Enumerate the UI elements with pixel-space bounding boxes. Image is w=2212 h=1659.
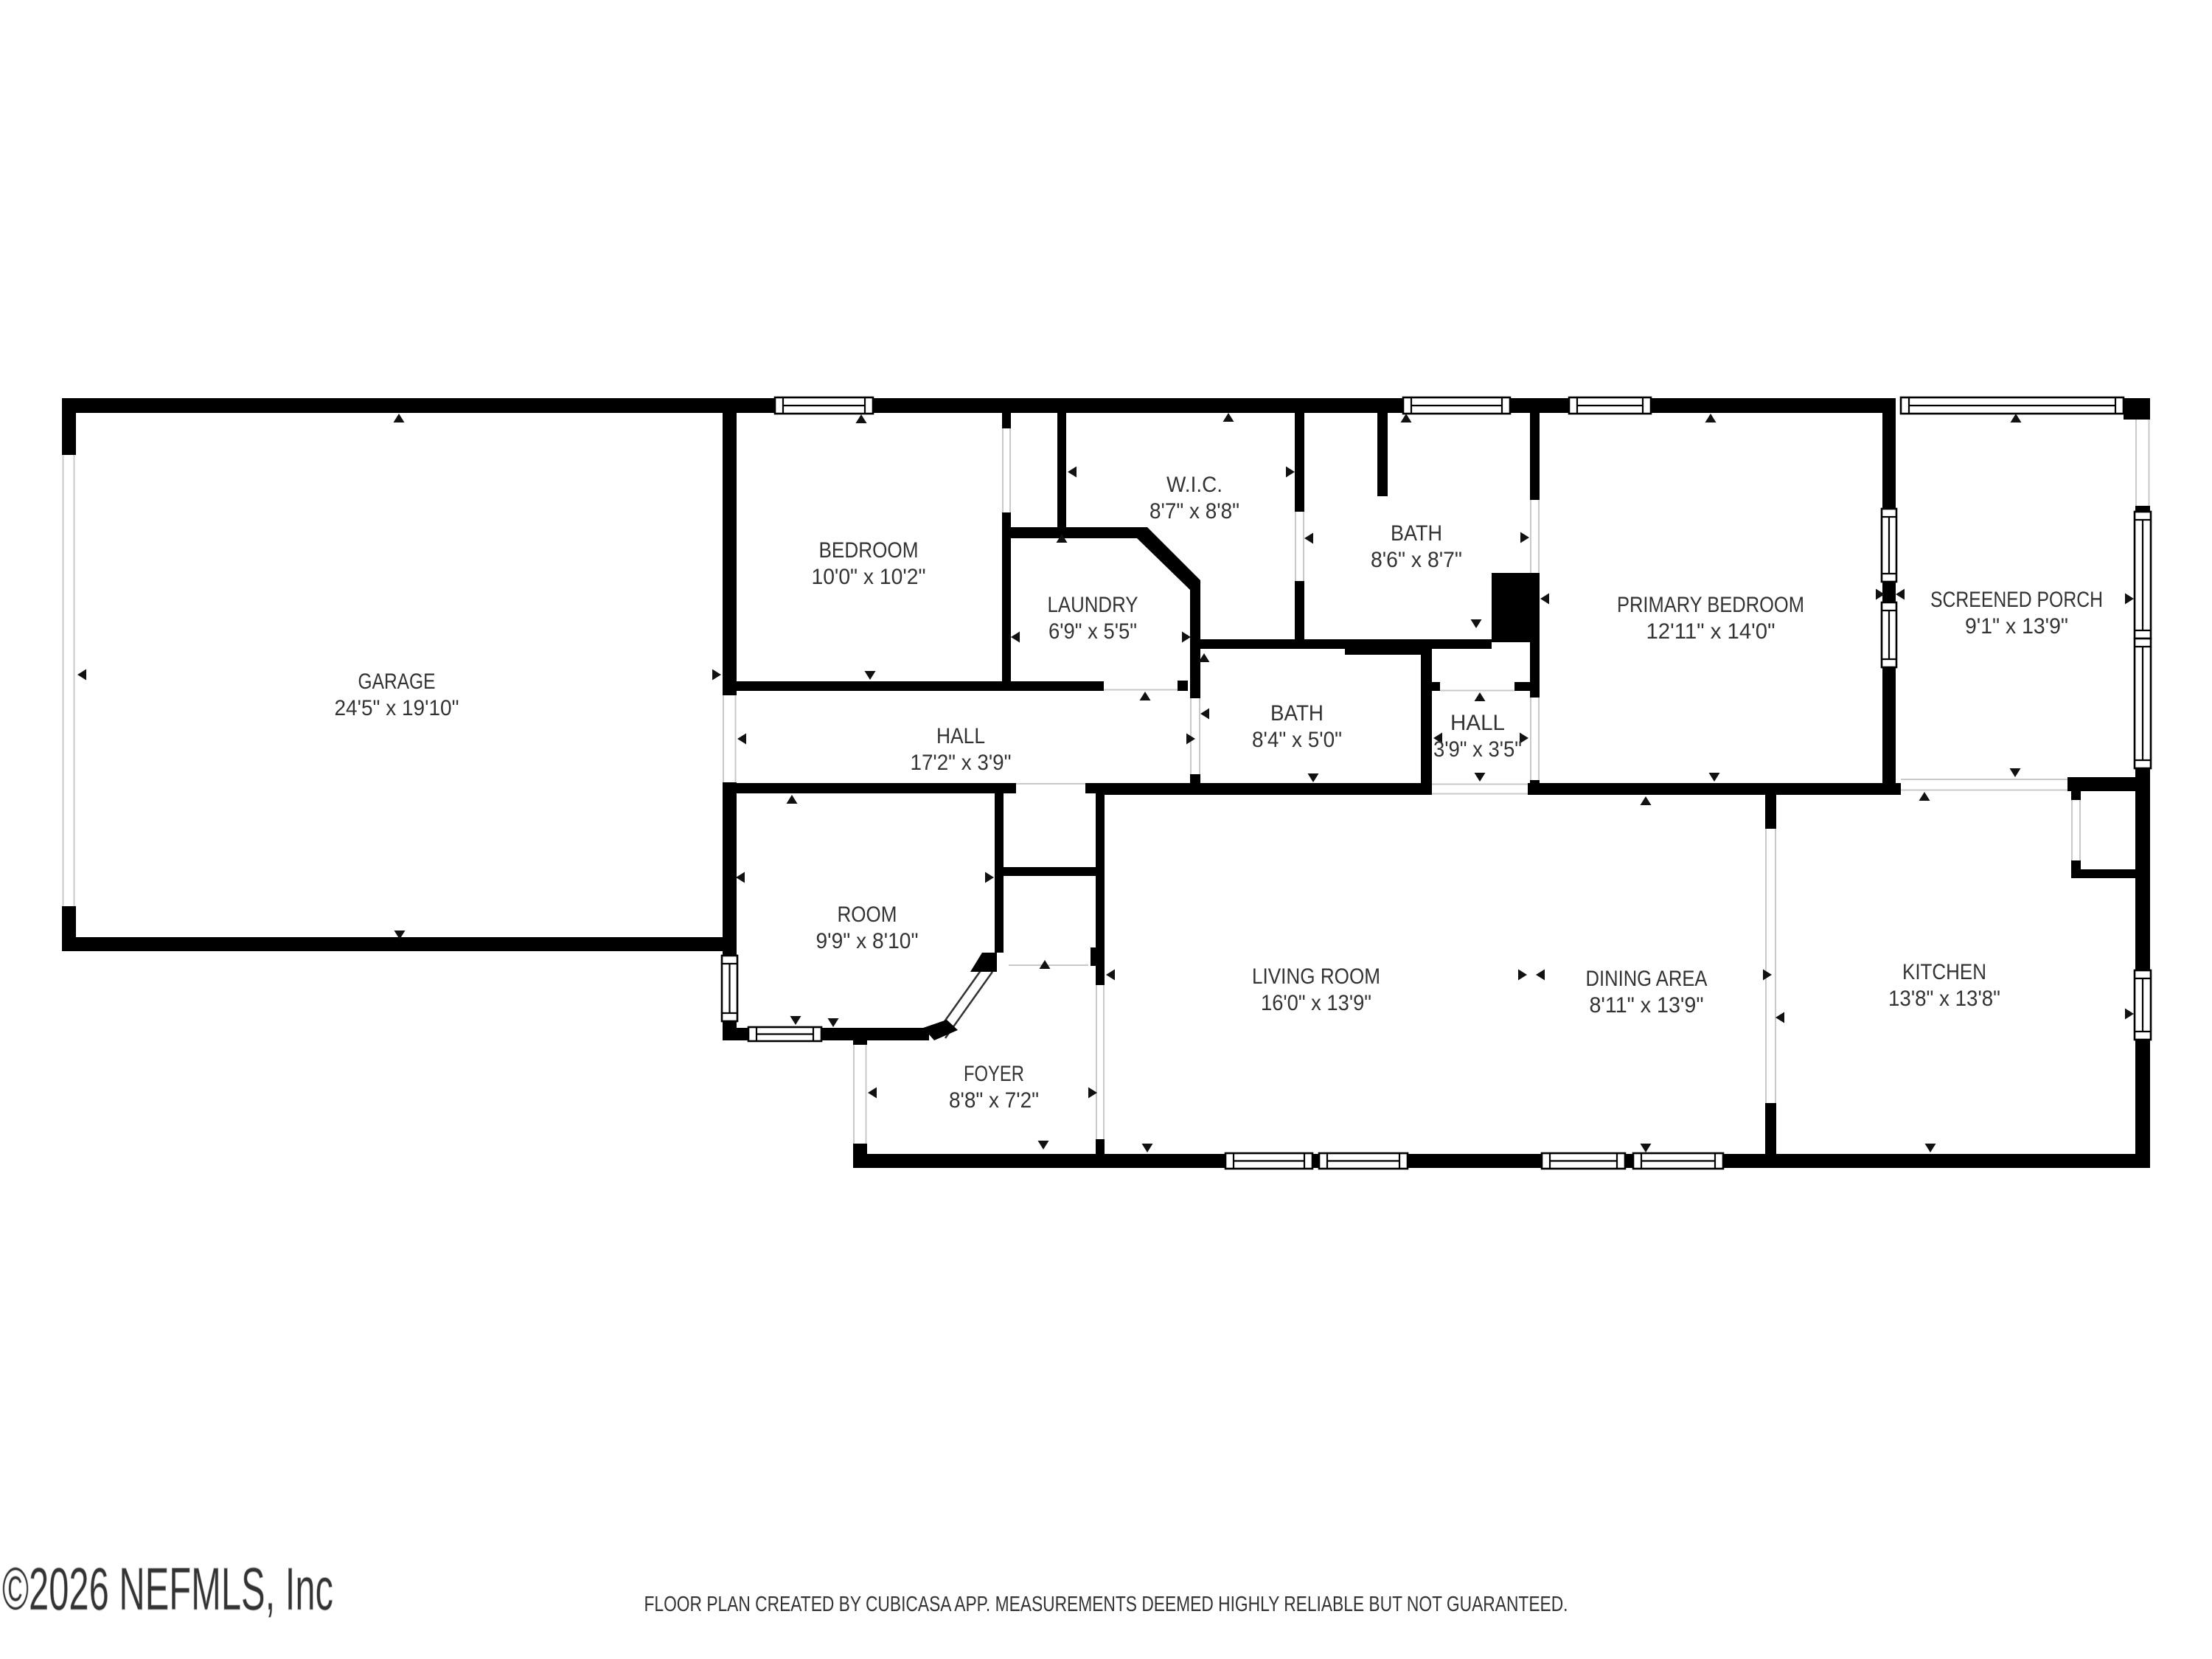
- svg-text:BATH: BATH: [1391, 521, 1442, 546]
- svg-text:SCREENED PORCH: SCREENED PORCH: [1930, 588, 2103, 612]
- svg-text:9'9" x 8'10": 9'9" x 8'10": [816, 929, 919, 953]
- svg-text:LAUNDRY: LAUNDRY: [1048, 593, 1138, 617]
- svg-text:FLOOR PLAN CREATED BY CUBICASA: FLOOR PLAN CREATED BY CUBICASA APP. MEAS…: [644, 1593, 1568, 1616]
- svg-text:24'5" x 19'10": 24'5" x 19'10": [335, 696, 459, 720]
- svg-text:10'0" x 10'2": 10'0" x 10'2": [812, 565, 926, 589]
- svg-text:LIVING ROOM: LIVING ROOM: [1252, 964, 1380, 989]
- svg-text:BATH: BATH: [1270, 701, 1324, 726]
- svg-text:9'1" x 13'9": 9'1" x 13'9": [1965, 614, 2068, 639]
- svg-text:6'9" x 5'5": 6'9" x 5'5": [1048, 619, 1137, 644]
- svg-text:3'9" x 3'5": 3'9" x 3'5": [1433, 737, 1522, 762]
- svg-text:8'6" x 8'7": 8'6" x 8'7": [1371, 548, 1462, 572]
- svg-text:8'11" x 13'9": 8'11" x 13'9": [1590, 993, 1704, 1018]
- svg-text:DINING AREA: DINING AREA: [1586, 967, 1708, 991]
- svg-text:©2026 NEFMLS, Inc: ©2026 NEFMLS, Inc: [2, 1556, 333, 1623]
- svg-text:ROOM: ROOM: [838, 902, 897, 927]
- svg-text:12'11" x 14'0": 12'11" x 14'0": [1646, 619, 1775, 644]
- svg-text:8'8" x 7'2": 8'8" x 7'2": [949, 1088, 1039, 1113]
- svg-text:16'0" x 13'9": 16'0" x 13'9": [1261, 991, 1371, 1015]
- svg-text:HALL: HALL: [1450, 711, 1505, 735]
- svg-text:8'4" x 5'0": 8'4" x 5'0": [1252, 728, 1342, 752]
- svg-text:PRIMARY BEDROOM: PRIMARY BEDROOM: [1617, 593, 1804, 617]
- svg-text:13'8" x 13'8": 13'8" x 13'8": [1888, 987, 2000, 1011]
- svg-text:W.I.C.: W.I.C.: [1166, 473, 1222, 497]
- svg-text:GARAGE: GARAGE: [358, 669, 436, 694]
- svg-text:HALL: HALL: [936, 724, 985, 748]
- svg-text:BEDROOM: BEDROOM: [819, 538, 919, 563]
- svg-text:FOYER: FOYER: [964, 1062, 1024, 1086]
- svg-text:KITCHEN: KITCHEN: [1902, 960, 1986, 984]
- svg-text:17'2" x 3'9": 17'2" x 3'9": [911, 751, 1012, 775]
- svg-text:8'7" x 8'8": 8'7" x 8'8": [1150, 499, 1239, 524]
